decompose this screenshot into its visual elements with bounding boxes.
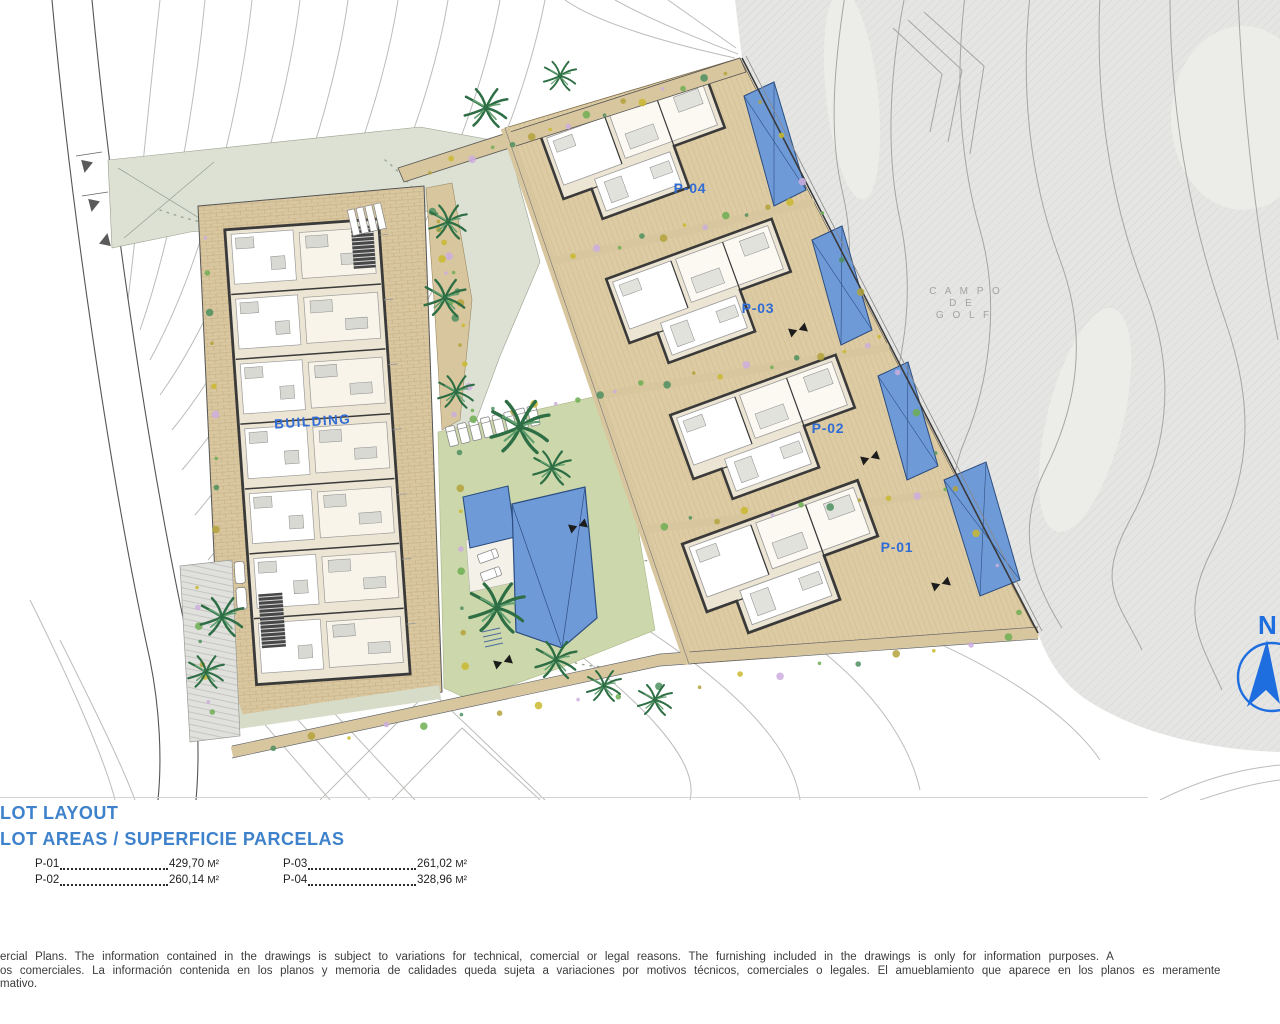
site-plan-page: C A M P O D E G O L F bbox=[0, 0, 1280, 1024]
plan-frame-line bbox=[0, 797, 1148, 798]
plot-id: P-04 bbox=[283, 874, 307, 886]
plot-area-value: 429,70 bbox=[169, 858, 204, 870]
plot-area-row: P-03 261,02 M² bbox=[283, 858, 467, 870]
page-subtitle: LOT AREAS / SUPERFICIE PARCELAS bbox=[0, 829, 345, 850]
plot-area-value: 328,96 bbox=[417, 874, 452, 886]
plot-area-unit: M² bbox=[207, 875, 219, 886]
plot-id: P-03 bbox=[283, 858, 307, 870]
legal-disclaimer: ercial Plans. The information contained … bbox=[0, 951, 1280, 992]
dotted-leader bbox=[60, 859, 168, 870]
disclaimer-line-2: os comerciales. La información contenida… bbox=[0, 965, 1280, 979]
plot-label-p03: P-03 bbox=[742, 300, 775, 316]
plot-label-p02: P-02 bbox=[812, 420, 845, 436]
plot-area-value: 261,02 bbox=[417, 858, 452, 870]
plot-label-p01: P-01 bbox=[881, 539, 914, 555]
dotted-leader bbox=[308, 859, 416, 870]
plot-area-unit: M² bbox=[207, 859, 219, 870]
plot-area-value: 260,14 bbox=[169, 874, 204, 886]
plot-areas-column-2: P-03 261,02 M² P-04 328,96 M² bbox=[283, 858, 467, 890]
stair-core bbox=[258, 593, 286, 649]
plot-area-unit: M² bbox=[455, 875, 467, 886]
disclaimer-line-3: mativo. bbox=[0, 978, 1280, 992]
golf-label-line3: G O L F bbox=[936, 310, 992, 321]
site-plan-drawing: C A M P O D E G O L F bbox=[0, 0, 1280, 800]
plot-area-row: P-02 260,14 M² bbox=[35, 874, 219, 886]
plot-id: P-02 bbox=[35, 874, 59, 886]
plot-id: P-01 bbox=[35, 858, 59, 870]
disclaimer-line-1: ercial Plans. The information contained … bbox=[0, 951, 1280, 965]
utility-bin bbox=[234, 561, 246, 584]
plot-area-row: P-01 429,70 M² bbox=[35, 858, 219, 870]
plot-area-row: P-04 328,96 M² bbox=[283, 874, 467, 886]
small-pool bbox=[463, 486, 515, 548]
main-pool bbox=[512, 487, 597, 648]
compass-north-label: N bbox=[1258, 610, 1277, 640]
plot-area-unit: M² bbox=[455, 859, 467, 870]
dotted-leader bbox=[308, 875, 416, 886]
golf-label-line1: C A M P O bbox=[929, 286, 1003, 297]
utility-bin bbox=[236, 587, 248, 610]
plot-label-p04: P-04 bbox=[674, 180, 707, 196]
dotted-leader bbox=[60, 875, 168, 886]
golf-label-line2: D E bbox=[949, 298, 975, 309]
landscaped-walk-strip bbox=[180, 560, 240, 742]
page-title: LOT LAYOUT bbox=[0, 803, 118, 824]
plot-areas-column-1: P-01 429,70 M² P-02 260,14 M² bbox=[35, 858, 219, 890]
